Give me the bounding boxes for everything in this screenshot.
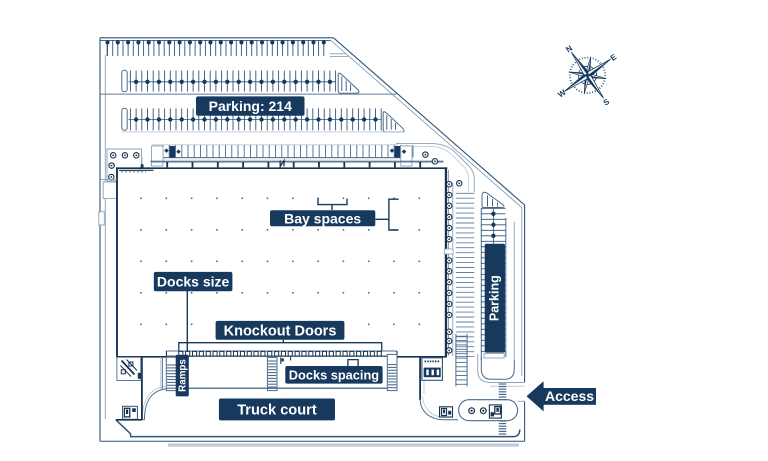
svg-text:N: N bbox=[564, 44, 574, 55]
svg-text:Docks spacing: Docks spacing bbox=[289, 367, 379, 382]
svg-text:W: W bbox=[556, 88, 568, 100]
svg-text:Access: Access bbox=[545, 388, 594, 404]
svg-text:Parking: Parking bbox=[488, 275, 502, 321]
svg-text:S: S bbox=[602, 97, 612, 108]
svg-text:E: E bbox=[609, 52, 619, 63]
svg-text:Bay spaces: Bay spaces bbox=[284, 210, 361, 226]
svg-text:Parking: 214: Parking: 214 bbox=[209, 98, 292, 114]
svg-text:Knockout Doors: Knockout Doors bbox=[224, 324, 337, 340]
svg-text:Docks size: Docks size bbox=[157, 274, 230, 290]
svg-text:Truck court: Truck court bbox=[237, 403, 317, 419]
svg-text:Ramps: Ramps bbox=[178, 359, 189, 392]
